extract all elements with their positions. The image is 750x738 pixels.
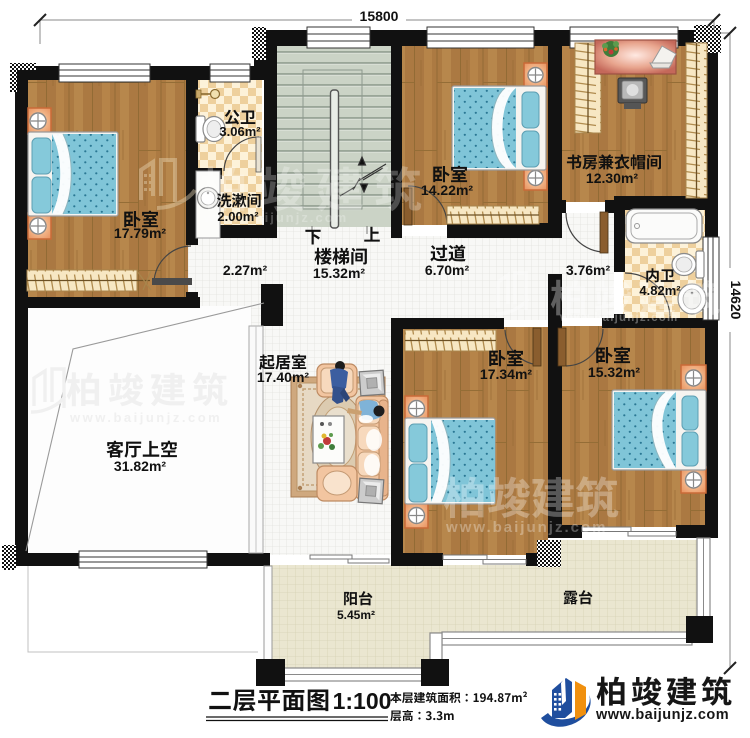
svg-text:2.27m²: 2.27m²	[223, 262, 268, 278]
svg-text:17.79m²: 17.79m²	[114, 225, 166, 241]
svg-text:17.40m²: 17.40m²	[257, 369, 309, 385]
svg-text:3.06m²: 3.06m²	[219, 124, 261, 139]
svg-text:www.baijunjz.com: www.baijunjz.com	[595, 707, 729, 723]
svg-text:31.82m²: 31.82m²	[114, 458, 166, 474]
svg-text:www.baijunjz.com: www.baijunjz.com	[69, 410, 222, 425]
svg-text:5.45m²: 5.45m²	[337, 608, 375, 622]
svg-text:15.32m²: 15.32m²	[313, 265, 365, 281]
svg-text:12.30m²: 12.30m²	[586, 170, 638, 186]
svg-text:14.22m²: 14.22m²	[421, 182, 473, 198]
svg-text:1:100: 1:100	[333, 688, 392, 714]
svg-text:15800: 15800	[360, 8, 399, 24]
svg-text:www.baijunjz.com: www.baijunjz.com	[559, 312, 678, 324]
svg-text:17.34m²: 17.34m²	[480, 366, 532, 382]
svg-text:2.00m²: 2.00m²	[217, 209, 259, 224]
svg-text:3.76m²: 3.76m²	[566, 262, 611, 278]
svg-text:15.32m²: 15.32m²	[588, 364, 640, 380]
svg-text:www.baijunjz.com: www.baijunjz.com	[445, 519, 607, 536]
svg-text:14620: 14620	[728, 281, 744, 320]
svg-text:6.70m²: 6.70m²	[425, 262, 470, 278]
svg-text:4.82m²: 4.82m²	[639, 283, 681, 298]
